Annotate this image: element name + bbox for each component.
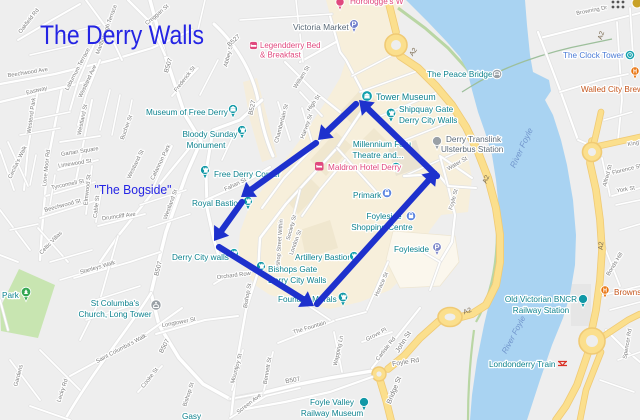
- svg-text:Legendderry Bed: Legendderry Bed: [260, 41, 321, 50]
- svg-text:Maldron Hotel Derry: Maldron Hotel Derry: [328, 163, 402, 172]
- svg-text:The Peace Bridge: The Peace Bridge: [427, 70, 493, 79]
- svg-text:Old Victorian BNCR: Old Victorian BNCR: [505, 295, 577, 304]
- svg-text:St Columba's: St Columba's: [91, 299, 139, 308]
- svg-text:Museum of Free Derry: Museum of Free Derry: [146, 108, 229, 117]
- svg-text:Railway Station: Railway Station: [513, 306, 570, 315]
- svg-text:Artillery Bastion: Artillery Bastion: [295, 253, 352, 262]
- svg-text:Foyleside: Foyleside: [394, 245, 429, 254]
- svg-text:Tower Museum: Tower Museum: [376, 92, 436, 102]
- svg-text:Primark: Primark: [353, 191, 382, 200]
- svg-text:& Breakfast: & Breakfast: [260, 51, 302, 60]
- svg-text:The Clock Tower: The Clock Tower: [563, 51, 624, 60]
- svg-text:Foyle Valley: Foyle Valley: [310, 398, 355, 407]
- svg-text:Bloody Sunday: Bloody Sunday: [182, 130, 238, 139]
- svg-text:Park: Park: [2, 291, 20, 300]
- svg-text:P: P: [434, 243, 439, 252]
- svg-text:"The Bogside": "The Bogside": [95, 182, 172, 197]
- svg-text:Monument: Monument: [187, 141, 226, 150]
- svg-text:Derry City Walls: Derry City Walls: [399, 116, 457, 125]
- svg-text:Shipquay Gate: Shipquay Gate: [399, 105, 454, 114]
- svg-text:Ulsterbus Station: Ulsterbus Station: [441, 145, 504, 154]
- svg-text:Victoria Market: Victoria Market: [293, 22, 349, 32]
- svg-text:Railway Museum: Railway Museum: [301, 409, 364, 418]
- svg-text:Derry Translink: Derry Translink: [446, 135, 502, 144]
- svg-text:A2: A2: [598, 241, 606, 250]
- svg-text:Browns: Browns: [614, 288, 640, 297]
- svg-text:Derry City walls: Derry City walls: [172, 253, 229, 262]
- svg-text:Horologge's W: Horologge's W: [350, 0, 404, 6]
- svg-text:Gasy: Gasy: [182, 412, 202, 420]
- svg-text:Londonderry Train: Londonderry Train: [489, 360, 556, 369]
- svg-text:The Derry Walls: The Derry Walls: [40, 20, 204, 50]
- svg-text:Walled City Brew: Walled City Brew: [581, 85, 640, 94]
- svg-text:Theatre and...: Theatre and...: [353, 151, 404, 160]
- svg-text:Church, Long Tower: Church, Long Tower: [78, 310, 151, 319]
- svg-text:P: P: [351, 20, 356, 29]
- svg-text:Bishops Gate: Bishops Gate: [268, 265, 318, 274]
